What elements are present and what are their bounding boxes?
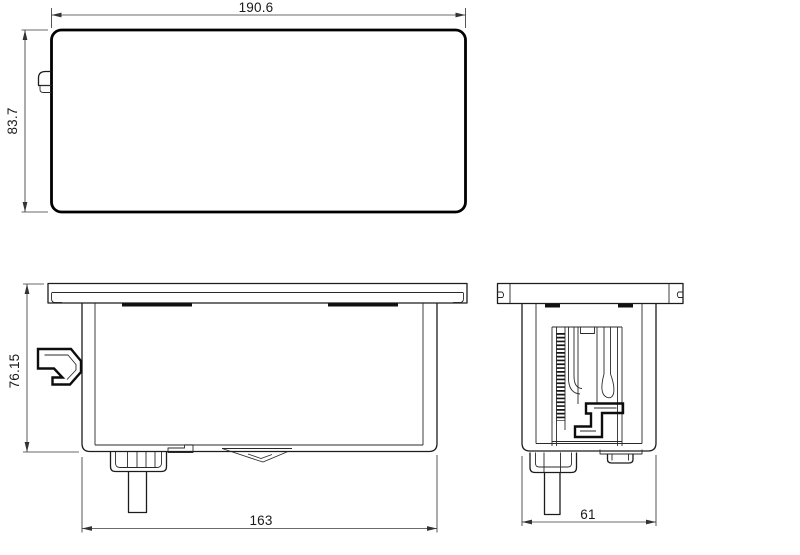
front-slot-mark-right	[328, 303, 398, 307]
top-view-side-tab	[39, 72, 52, 86]
extension-lines	[22, 30, 49, 212]
arrowhead-bottom	[23, 202, 28, 212]
front-body-outline	[82, 303, 437, 452]
arrowhead-left	[522, 520, 532, 525]
dim-side-width: 61	[522, 455, 656, 526]
arrowhead-right	[456, 13, 466, 18]
front-bottom-latch	[222, 449, 292, 463]
connector-housing	[111, 452, 167, 472]
side-view: 61	[498, 284, 684, 527]
side-flange-right-hook	[677, 292, 683, 298]
front-view: 76.15 163	[7, 284, 467, 533]
dim-label-top-width: 190.6	[239, 0, 274, 15]
top-view-side-tab-lip	[40, 86, 52, 93]
top-view: 190.6 83.7	[5, 0, 466, 212]
drawing-canvas: 190.6 83.7	[0, 0, 800, 555]
front-slot-mark-left	[122, 303, 192, 307]
side-connector	[530, 453, 577, 515]
mechanism-top-notch	[581, 327, 595, 334]
side-slot-mark-right	[618, 304, 633, 308]
side-bottom-plate	[600, 450, 642, 455]
dim-label-top-height: 83.7	[5, 107, 20, 134]
front-connector	[111, 452, 167, 513]
connector-pins	[128, 452, 156, 468]
arrowhead-bottom	[25, 442, 30, 452]
side-bottom-block-inner	[612, 454, 629, 461]
dim-front-width: 163	[82, 455, 437, 533]
front-flange	[48, 284, 467, 304]
side-body-outline	[522, 304, 656, 452]
side-flange	[498, 284, 684, 304]
connector-stem	[129, 472, 147, 513]
side-flange-end-caps	[510, 284, 669, 303]
front-body-inner-walls	[95, 303, 423, 445]
dim-label-side-width: 61	[580, 507, 595, 522]
top-view-outline	[52, 30, 466, 212]
arrowhead-left	[52, 13, 62, 18]
side-flange-left-hook	[498, 292, 504, 298]
arrowhead-top	[23, 30, 28, 40]
front-flange-right-hook	[453, 293, 464, 303]
release-rod	[602, 327, 614, 398]
dim-label-front-width: 163	[249, 513, 272, 528]
side-latch-mechanism	[552, 327, 623, 446]
dim-label-front-height: 76.15	[7, 354, 22, 389]
arrowhead-left	[82, 526, 92, 531]
dim-top-height: 83.7	[5, 30, 48, 212]
center-post	[569, 327, 583, 394]
arrowhead-right	[646, 520, 656, 525]
connector-inner	[536, 453, 572, 468]
arrowhead-top	[25, 284, 30, 294]
side-bottom-block	[608, 454, 634, 463]
front-flange-left-hook	[52, 293, 63, 303]
connector-housing	[530, 453, 577, 473]
engineering-drawing: 190.6 83.7	[0, 0, 800, 555]
guide-column	[578, 327, 597, 404]
front-latch-clip	[38, 349, 81, 385]
side-slot-mark-left	[545, 304, 560, 308]
arrowhead-right	[427, 526, 437, 531]
connector-stem	[545, 473, 561, 515]
z-latch-bracket	[575, 404, 623, 438]
connector-pins	[544, 453, 561, 473]
dim-top-width: 190.6	[52, 0, 466, 28]
